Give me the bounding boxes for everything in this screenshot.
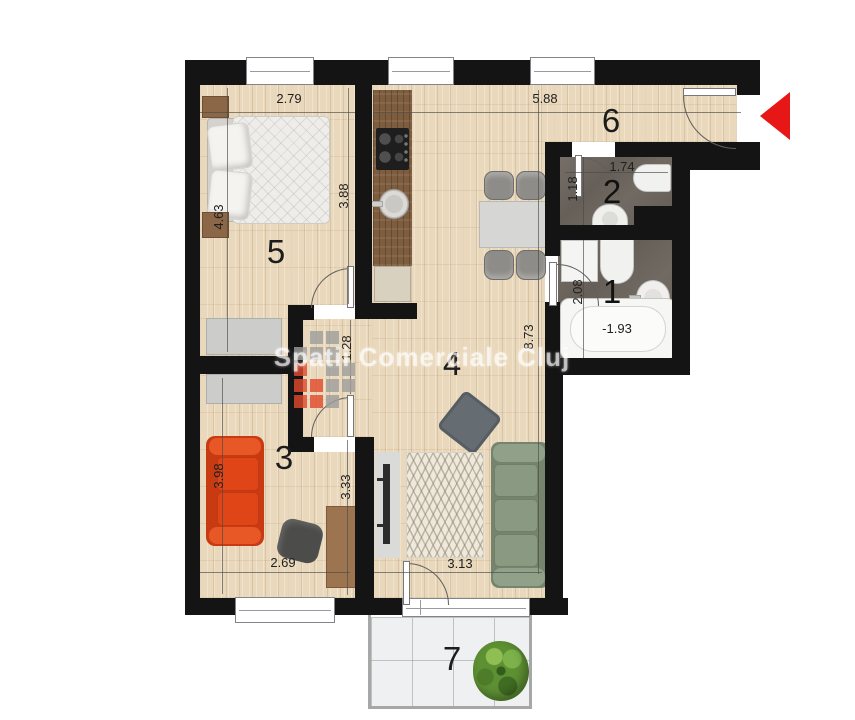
floor-plan: 2.79 5.88 3.88 4.63 1.28 8.73 3.98 2.69 … bbox=[0, 0, 855, 720]
balcony-rail-bottom bbox=[368, 706, 532, 709]
wall bbox=[355, 85, 372, 303]
logo-cell bbox=[310, 395, 323, 408]
green-sofa-cushion-1 bbox=[494, 464, 538, 497]
kitchen-sink bbox=[379, 189, 409, 219]
tv bbox=[383, 464, 390, 544]
bed-pillow-top bbox=[206, 122, 253, 173]
entrance-arrow-icon bbox=[760, 92, 790, 140]
window-room3 bbox=[235, 597, 335, 623]
room-number-2: 2 bbox=[590, 171, 634, 213]
window-glass-line bbox=[406, 608, 526, 609]
logo-cell bbox=[294, 395, 307, 408]
window-kitchen bbox=[388, 57, 454, 85]
dim-label-bathtub: -1.93 bbox=[597, 321, 637, 337]
kitchen-counter bbox=[373, 90, 412, 266]
fridge bbox=[374, 266, 411, 302]
dining-table bbox=[479, 201, 546, 248]
wall bbox=[634, 206, 672, 226]
window-bedroom5 bbox=[246, 57, 314, 85]
red-sofa-arm-bottom bbox=[209, 527, 261, 544]
green-sofa-cushion-3 bbox=[494, 534, 538, 567]
dim-line bbox=[200, 572, 350, 573]
dim-label-room5-left-height: 4.63 bbox=[211, 197, 227, 237]
red-sofa-arm-top bbox=[209, 438, 261, 455]
wall bbox=[185, 598, 237, 615]
wall bbox=[355, 303, 417, 319]
wall bbox=[185, 60, 200, 615]
wall bbox=[545, 375, 563, 598]
wall bbox=[672, 142, 690, 375]
tv-foot-bottom bbox=[377, 524, 384, 527]
wall bbox=[558, 225, 674, 240]
wardrobe-room3 bbox=[206, 374, 282, 404]
dining-chair-1 bbox=[484, 171, 514, 200]
dim-label-hall-width: 5.88 bbox=[525, 91, 565, 107]
logo-cell bbox=[310, 379, 323, 392]
wall bbox=[312, 60, 390, 85]
dim-label-room3-width: 2.69 bbox=[263, 555, 303, 571]
dim-label-room5-height: 3.88 bbox=[336, 176, 352, 216]
door-leaf-bath1 bbox=[549, 262, 557, 306]
room-number-5: 5 bbox=[254, 231, 298, 273]
wall bbox=[593, 60, 737, 85]
wall bbox=[530, 598, 568, 615]
window-glass-line bbox=[239, 610, 331, 611]
balcony-rail-left bbox=[368, 615, 371, 709]
dim-line bbox=[347, 440, 348, 595]
dim-label-room3-left-height: 3.98 bbox=[211, 456, 227, 496]
room-number-3: 3 bbox=[262, 437, 306, 479]
window-hall bbox=[530, 57, 595, 85]
dining-chair-3 bbox=[484, 250, 514, 280]
wardrobe-room5 bbox=[206, 318, 282, 355]
red-sofa-cushion-2 bbox=[217, 492, 259, 526]
room-number-7: 7 bbox=[430, 638, 474, 680]
rug bbox=[406, 452, 484, 558]
dim-label-room5-width: 2.79 bbox=[269, 91, 309, 107]
nightstand-top bbox=[202, 96, 229, 118]
window-glass-line bbox=[534, 71, 591, 72]
dim-line bbox=[373, 112, 741, 113]
wall bbox=[737, 60, 760, 95]
window-glass-line bbox=[392, 71, 450, 72]
wall bbox=[615, 142, 690, 157]
desk bbox=[326, 506, 356, 588]
wall bbox=[333, 598, 403, 615]
green-sofa-cushion-2 bbox=[494, 499, 538, 532]
tv-foot-top bbox=[377, 478, 384, 481]
logo-cell bbox=[342, 379, 355, 392]
dim-line bbox=[538, 90, 539, 574]
dining-chair-2 bbox=[516, 171, 546, 200]
watermark-text: Spatii Comerciale Cluj bbox=[272, 342, 572, 373]
dim-label-living-width: 3.13 bbox=[440, 556, 480, 572]
logo-cell bbox=[326, 395, 339, 408]
door-leaf-balcony bbox=[403, 561, 410, 605]
dim-line bbox=[227, 88, 228, 352]
stove bbox=[376, 128, 409, 170]
dim-label-wc2-height: 1.18 bbox=[565, 169, 581, 209]
room-number-1: 1 bbox=[590, 271, 634, 313]
dim-line bbox=[583, 157, 584, 225]
dim-label-bath1-height: 2.08 bbox=[570, 272, 586, 312]
wall bbox=[355, 437, 374, 598]
dim-label-room3-right-height: 3.33 bbox=[338, 467, 354, 507]
door-leaf-entrance bbox=[683, 88, 736, 96]
plant bbox=[473, 641, 529, 701]
logo-cell bbox=[294, 379, 307, 392]
room-number-6: 6 bbox=[589, 100, 633, 142]
wall bbox=[452, 60, 532, 85]
balcony-rail-right bbox=[529, 615, 532, 709]
dim-line bbox=[200, 112, 355, 113]
window-glass-line bbox=[250, 71, 310, 72]
dim-line bbox=[374, 572, 542, 573]
logo-cell bbox=[326, 379, 339, 392]
dining-chair-4 bbox=[516, 250, 546, 280]
logo-cell bbox=[342, 395, 355, 408]
